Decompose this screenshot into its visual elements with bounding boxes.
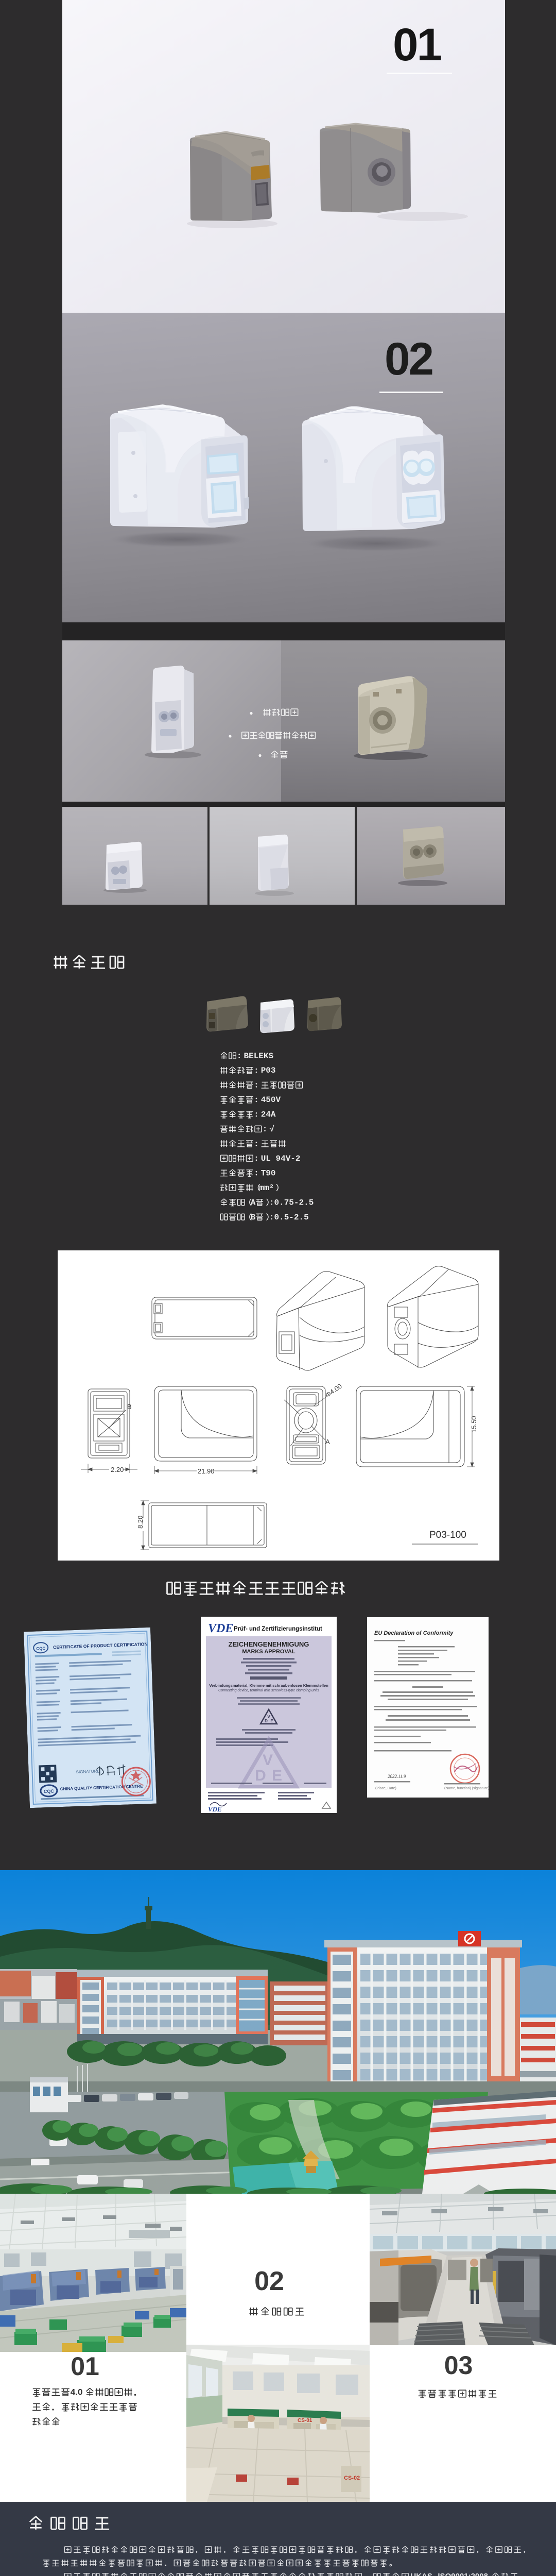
svg-text:450V: 450V — [261, 1095, 281, 1105]
svg-text:Prüf- und Zertifizierungsinsti: Prüf- und Zertifizierungsinstitut — [234, 1626, 322, 1632]
svg-text:VDE: VDE — [208, 1805, 222, 1813]
svg-text:CS-02: CS-02 — [344, 2475, 360, 2481]
svg-text:T90: T90 — [261, 1168, 276, 1178]
svg-text:Verbindungsmaterial, Klemme mi: Verbindungsmaterial, Klemme mit schraube… — [209, 1683, 328, 1688]
svg-text:Connecting device, terminal wi: Connecting device, terminal with screwle… — [218, 1689, 319, 1692]
svg-text:CQC: CQC — [36, 1646, 45, 1651]
svg-text:4.0: 4.0 — [71, 2387, 83, 2397]
svg-text:mm²: mm² — [259, 1183, 274, 1193]
svg-text:24A: 24A — [261, 1110, 276, 1120]
svg-text:UL: UL — [261, 1154, 271, 1163]
svg-text:CQC: CQC — [44, 1789, 55, 1794]
svg-text:2.20: 2.20 — [111, 1466, 124, 1473]
svg-text:A: A — [251, 1198, 256, 1207]
svg-text:8.20: 8.20 — [136, 1516, 144, 1529]
svg-text:21.90: 21.90 — [198, 1467, 215, 1475]
svg-text:E: E — [270, 1719, 273, 1723]
svg-text:VDE: VDE — [208, 1622, 233, 1635]
svg-text:D: D — [255, 1767, 266, 1784]
svg-text::0.75-2.5: :0.75-2.5 — [269, 1198, 314, 1207]
svg-text:2022.11.9: 2022.11.9 — [388, 1774, 406, 1779]
svg-text:D: D — [265, 1719, 268, 1723]
svg-text:(Place, Date): (Place, Date) — [375, 1787, 396, 1790]
svg-text:B: B — [251, 1213, 256, 1222]
svg-text:√: √ — [269, 1125, 274, 1134]
svg-text:P03-100: P03-100 — [429, 1530, 466, 1540]
svg-text:V: V — [263, 1752, 273, 1769]
svg-text:(Name, function) (signature): (Name, function) (signature) — [444, 1787, 489, 1790]
svg-text:ISO9001:2008: ISO9001:2008 — [438, 2572, 488, 2576]
svg-text:BELEKS: BELEKS — [244, 1052, 274, 1061]
svg-text:CS-01: CS-01 — [298, 2418, 312, 2424]
svg-text:15.50: 15.50 — [470, 1416, 478, 1433]
svg-text:SIGNATURE: SIGNATURE — [76, 1769, 100, 1774]
svg-text:P03: P03 — [261, 1066, 276, 1075]
svg-text:UKAS: UKAS — [410, 2572, 432, 2576]
svg-text:EU Declaration of Conformity: EU Declaration of Conformity — [374, 1630, 454, 1636]
svg-text:B: B — [127, 1403, 132, 1411]
svg-text:A: A — [325, 1438, 330, 1446]
svg-text::0.5-2.5: :0.5-2.5 — [269, 1213, 309, 1222]
svg-text:MARKS APPROVAL: MARKS APPROVAL — [242, 1649, 296, 1655]
svg-text:ZEICHENGENEHMIGUNG: ZEICHENGENEHMIGUNG — [229, 1640, 309, 1648]
svg-text:94V-2: 94V-2 — [276, 1154, 301, 1163]
svg-text:E: E — [272, 1767, 282, 1784]
